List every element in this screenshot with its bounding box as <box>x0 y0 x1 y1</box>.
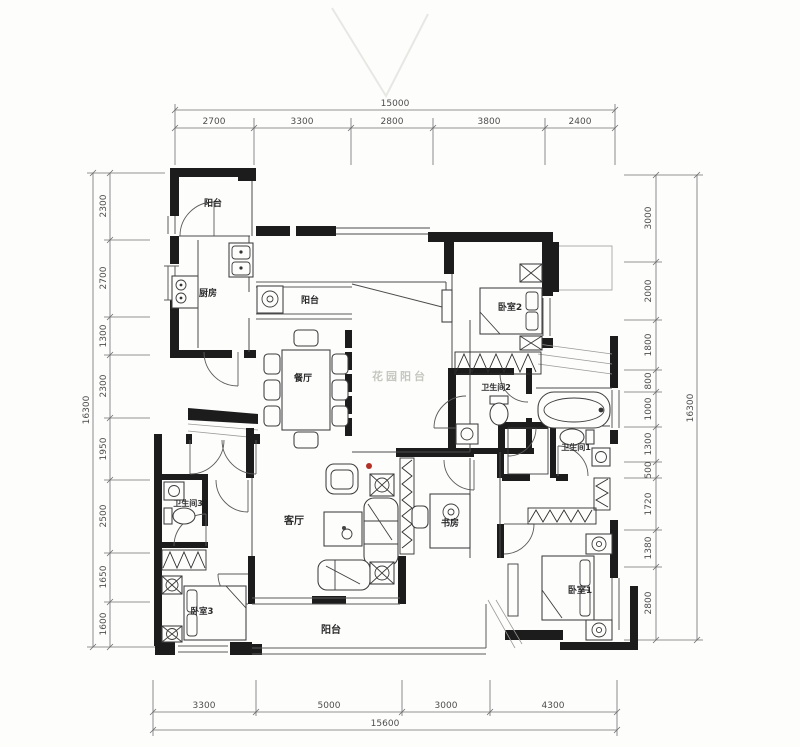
dim-bottom-seg-3: 4300 <box>542 701 565 711</box>
dim-right-seg-4: 1000 <box>644 397 654 420</box>
dim-right-seg-8: 1380 <box>644 536 654 559</box>
red-dot-marker <box>366 463 372 469</box>
washing-machine-icon <box>257 286 283 313</box>
room-label-living: 客厅 <box>283 514 304 527</box>
dim-left-total: 16300 <box>82 395 92 424</box>
floor-plan-page: 15000 2700 3300 2800 3800 2400 3300 5000… <box>0 0 800 747</box>
room-label-dining: 餐厅 <box>293 372 312 384</box>
dimension-chain-left: 16300 2300 2700 1300 2300 1950 2500 1650… <box>82 170 165 650</box>
dimension-chain-top: 15000 2700 3300 2800 3800 2400 <box>172 99 618 165</box>
dim-right-seg-0: 3000 <box>644 206 654 229</box>
room-label-bedroom1: 卧室1 <box>568 584 592 596</box>
sink-bath1-icon <box>592 448 610 466</box>
dim-left-seg-7: 1600 <box>99 612 109 635</box>
dim-left-seg-1: 2700 <box>99 266 109 289</box>
dim-right-seg-9: 2800 <box>644 591 654 614</box>
dim-right-total: 16300 <box>686 393 696 422</box>
room-label-study: 书房 <box>441 517 459 529</box>
dim-right-seg-7: 1720 <box>644 492 654 515</box>
bed-bedroom2 <box>442 264 542 350</box>
dim-bottom-seg-2: 3000 <box>435 701 458 711</box>
bookshelf-study <box>400 458 414 554</box>
dim-top-seg-4: 2400 <box>569 117 592 127</box>
room-label-bedroom2: 卧室2 <box>498 301 522 313</box>
dim-right-seg-2: 1800 <box>644 333 654 356</box>
dim-left-seg-2: 1300 <box>99 324 109 347</box>
dim-bottom-seg-1: 5000 <box>318 701 341 711</box>
room-label-kitchen: 厨房 <box>199 287 217 299</box>
dim-bottom-total: 15600 <box>371 719 400 729</box>
kitchen-sink-icon <box>229 243 253 277</box>
scan-crease-mark <box>332 8 428 96</box>
dim-right-seg-1: 2000 <box>644 279 654 302</box>
room-label-garden-balcony-watermark: 花园阳台 <box>372 369 428 383</box>
dim-left-seg-6: 1650 <box>99 565 109 588</box>
dim-right-seg-6: 500 <box>644 461 654 478</box>
room-label-bath2: 卫生间2 <box>481 382 511 392</box>
wardrobe-bedroom1 <box>528 478 610 524</box>
dimension-chain-bottom: 3300 5000 3000 4300 15600 <box>150 680 620 736</box>
dim-top-total: 15000 <box>381 99 410 109</box>
dim-left-seg-4: 1950 <box>99 437 109 460</box>
dim-top-seg-3: 3800 <box>478 117 501 127</box>
wardrobe-bedroom3 <box>162 550 206 570</box>
room-label-balcony-mid: 阳台 <box>301 294 319 306</box>
dining-table <box>264 330 348 448</box>
dim-bottom-seg-0: 3300 <box>193 701 216 711</box>
dim-top-seg-1: 3300 <box>291 117 314 127</box>
bathtub-icon <box>538 392 610 428</box>
floor-plan-drawing: 15000 2700 3300 2800 3800 2400 3300 5000… <box>0 0 800 747</box>
room-label-balcony-top: 阳台 <box>204 197 222 209</box>
room-label-bath3: 卫生间3 <box>173 498 203 508</box>
dim-left-seg-3: 2300 <box>99 374 109 397</box>
sink-bath3-icon <box>164 482 184 500</box>
sofa-set <box>318 464 398 590</box>
room-label-bedroom3: 卧室3 <box>191 606 214 617</box>
dimension-chain-right: 16300 3000 2000 1800 800 1000 1300 500 1… <box>624 172 703 643</box>
room-label-bath1: 卫生间1 <box>561 442 591 452</box>
dim-top-seg-0: 2700 <box>203 117 226 127</box>
toilet-bath3-icon <box>164 508 195 524</box>
dim-right-seg-5: 1300 <box>644 432 654 455</box>
sink-bath2-icon <box>456 424 478 444</box>
dim-top-seg-2: 2800 <box>381 117 404 127</box>
dim-left-seg-5: 2500 <box>99 504 109 527</box>
room-label-balcony-bottom: 阳台 <box>321 623 341 636</box>
bed-bedroom1 <box>508 534 612 640</box>
dim-left-seg-0: 2300 <box>99 194 109 217</box>
furniture <box>162 240 612 642</box>
toilet-bath2-icon <box>490 396 508 425</box>
dim-right-seg-3: 800 <box>644 372 654 389</box>
